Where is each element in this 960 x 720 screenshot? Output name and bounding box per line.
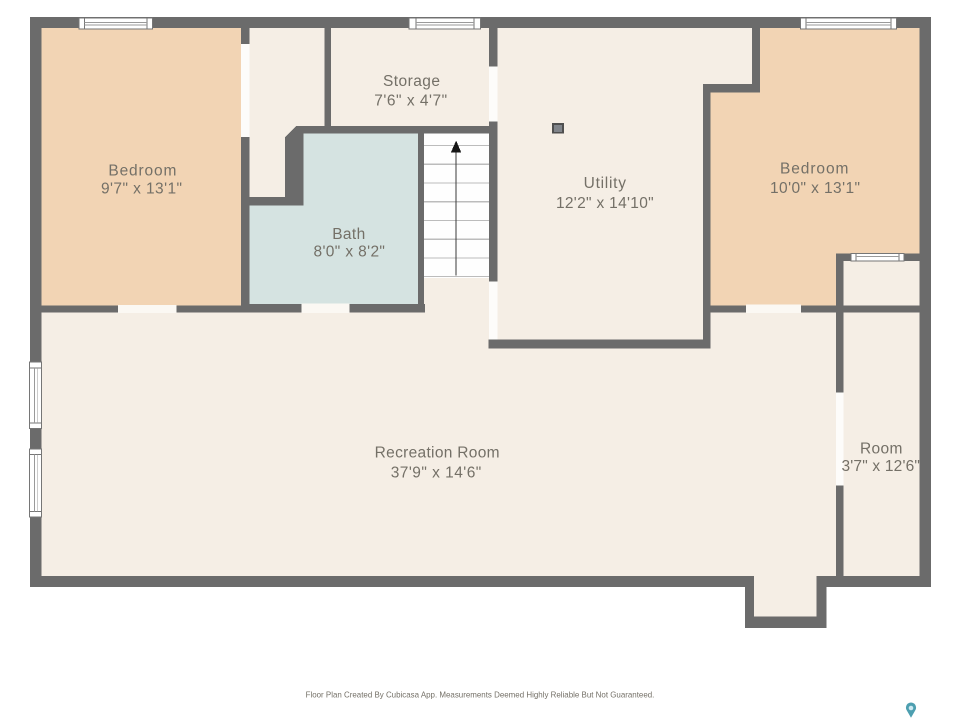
svg-text:3'7" x 12'6": 3'7" x 12'6" — [841, 458, 920, 475]
svg-text:Floor Plan Created By Cubicasa: Floor Plan Created By Cubicasa App. Meas… — [306, 690, 655, 699]
svg-text:7'6" x 4'7": 7'6" x 4'7" — [374, 92, 447, 109]
svg-text:Bedroom: Bedroom — [108, 162, 176, 179]
svg-text:8'0" x 8'2": 8'0" x 8'2" — [313, 244, 385, 261]
svg-text:Room: Room — [860, 440, 903, 457]
svg-text:Utility: Utility — [584, 175, 627, 192]
svg-text:10'0" x 13'1": 10'0" x 13'1" — [770, 180, 860, 197]
svg-text:12'2" x 14'10": 12'2" x 14'10" — [556, 195, 654, 212]
svg-text:Bath: Bath — [332, 226, 365, 243]
svg-text:Recreation Room: Recreation Room — [375, 444, 500, 461]
svg-text:9'7" x 13'1": 9'7" x 13'1" — [101, 181, 182, 198]
svg-text:Storage: Storage — [383, 73, 440, 90]
svg-text:37'9" x 14'6": 37'9" x 14'6" — [391, 464, 482, 481]
svg-text:Bedroom: Bedroom — [780, 160, 849, 177]
